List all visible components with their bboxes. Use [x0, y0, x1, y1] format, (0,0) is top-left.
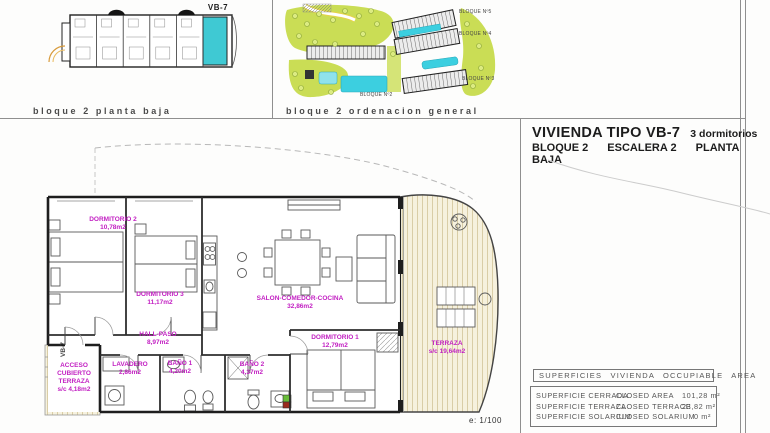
bidet-icon — [203, 391, 213, 403]
bedrooms-count: 3 dormitorios — [690, 128, 757, 140]
sofa — [357, 235, 395, 303]
site-block-label-2: BLOQUE Nº2 — [360, 92, 392, 98]
scale-label: e: 1/100 — [469, 416, 502, 425]
site-plan-caption: bloque 2 ordenacion general — [286, 106, 479, 116]
surfaces-row-solarium: SUPERFICIE SOLARIUM CLOSED SOLARIUM 0 m² — [536, 412, 711, 423]
room-label-acceso: ACCESO CUBIERTO TERRAZAs/c 4,18m2 — [50, 362, 98, 395]
fridge-icon — [203, 312, 216, 328]
frame-divider-panels — [272, 0, 273, 118]
room-label-bano-1: BAÑO 14,20m2 — [152, 360, 208, 376]
room-label-dormitorio-1: DORMITORIO 112,79m2 — [285, 334, 385, 350]
awning-icon — [178, 10, 195, 15]
site-block-label-5: BLOQUE Nº5 — [459, 9, 491, 15]
frame-divider-horizontal — [0, 118, 746, 119]
room-label-salon: SALON-COMEDOR-COCINA32,86m2 — [245, 295, 355, 311]
block-plan-unit-label: VB-7 — [203, 3, 233, 12]
surfaces-row-terrace: SUPERFICIE TERRAZA CLOSED TERRACE 23,82 … — [536, 402, 711, 413]
lounger-icon — [437, 309, 475, 327]
dwelling-type-title: VIVIENDA TIPO VB-7 — [532, 125, 680, 141]
room-label-lavadero: LAVADERO2,86m2 — [100, 361, 160, 377]
room-label-dormitorio-2: DORMITORIO 210,78m2 — [63, 216, 163, 232]
toilet-icon — [185, 390, 196, 404]
block-plan-drawing — [45, 3, 240, 79]
surfaces-table-header: SUPERFICIES VIVIENDA OCCUPIABLE AREA — [533, 369, 714, 382]
dining-table — [275, 240, 320, 285]
site-block-label-4: BLOQUE Nº4 — [459, 31, 491, 37]
site-block-label-3: BLOQUE Nº3 — [462, 76, 494, 82]
plan-unit-tag: VB-7 — [60, 337, 72, 363]
surfaces-row-closed-area: SUPERFICIE CERRADA CLOSED AREA 101,28 m² — [536, 391, 711, 402]
room-label-terraza: TERRAZAs/c 19,64m2 — [402, 340, 492, 356]
toilet-icon — [248, 395, 259, 409]
awning-icon — [108, 10, 125, 15]
frame-divider-titleblock — [520, 118, 521, 433]
coffee-table — [336, 257, 352, 281]
block-plan-caption: bloque 2 planta baja — [33, 106, 172, 116]
surfaces-table: SUPERFICIE CERRADA CLOSED AREA 101,28 m²… — [530, 386, 717, 427]
boundary-line-right — [528, 148, 770, 228]
title-block: VIVIENDA TIPO VB-7 3 dormitorios — [532, 125, 757, 141]
drawing-sheet: VB-7 bloque 2 planta baja — [0, 0, 770, 433]
floor-plan-drawing — [35, 140, 515, 433]
site-plan-drawing — [283, 2, 518, 104]
room-label-hall: HALL-PASO8,97m2 — [118, 331, 198, 347]
room-label-bano-2: BAÑO 24,37m2 — [224, 361, 280, 377]
stove-icon — [204, 243, 216, 265]
room-label-dormitorio-3: DORMITORIO 311,17m2 — [110, 291, 210, 307]
washer-icon — [105, 386, 124, 405]
lounger-icon — [437, 287, 475, 305]
